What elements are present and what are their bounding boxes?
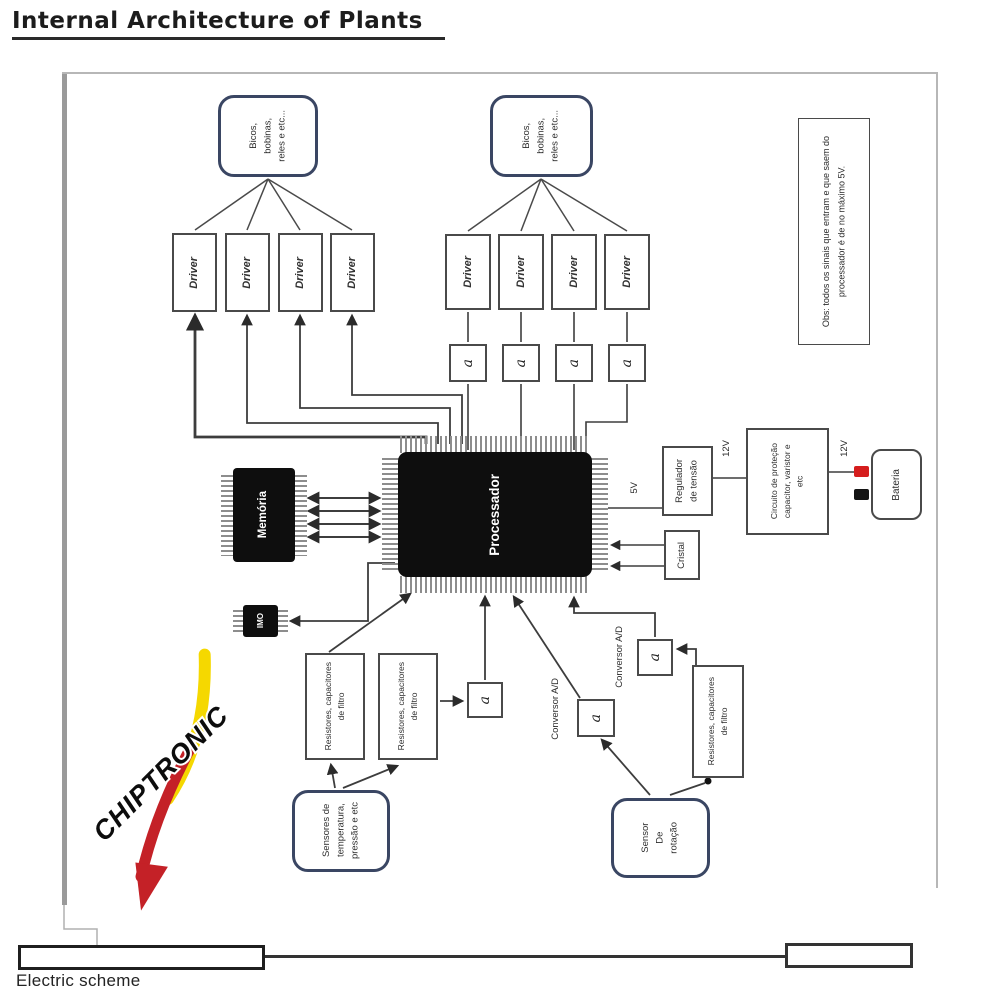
logo-red-swoosh: [101, 748, 230, 877]
ci-box: a: [555, 344, 593, 382]
electric-scheme-rect-right: [785, 943, 913, 968]
crystal-box: Cristal: [664, 530, 700, 580]
driver-box: Driver: [445, 234, 491, 310]
driver-box: Driver: [551, 234, 597, 310]
driver-label: Driver: [566, 256, 583, 288]
driver-box: Driver: [172, 233, 217, 312]
ci-box: a: [502, 344, 540, 382]
battery-terminals: [854, 466, 869, 500]
driver-label: Driver: [619, 256, 636, 288]
processor-label: Processador: [485, 474, 505, 556]
ci-label: a: [645, 653, 666, 661]
filter-label: Resistores, capacitores de filtro: [395, 662, 421, 750]
ci-box: a: [467, 682, 503, 718]
electric-scheme-rect-left: [18, 945, 265, 970]
ci-box: a: [577, 699, 615, 737]
memory-pins-right: [294, 475, 307, 556]
filter-label: Resistores, capacitores de filtro: [705, 677, 731, 765]
battery-label: Bateria: [889, 469, 904, 501]
ci-box: a: [608, 344, 646, 382]
imo-chip: IMO: [243, 605, 278, 637]
processor-pins-left: [382, 458, 399, 572]
protection-circuit-label: Circuito de proteção capacitor, varistor…: [768, 443, 806, 519]
driver-box: Driver: [278, 233, 323, 312]
5v-label: 5V: [626, 472, 644, 504]
diagram-frame-left: [62, 72, 67, 905]
ci-box: a: [637, 639, 673, 676]
driver-label: Driver: [239, 257, 256, 289]
driver-box: Driver: [225, 233, 270, 312]
electric-scheme-label: Electric scheme: [16, 971, 140, 991]
crystal-label: Cristal: [675, 542, 689, 569]
ci-label: a: [475, 696, 496, 704]
actuators-label: Bicos, bobinas, reles e etc...: [247, 110, 290, 162]
driver-label: Driver: [292, 257, 309, 289]
adc-label: Conversor A/D: [610, 620, 630, 694]
driver-box: Driver: [604, 234, 650, 310]
logo-text: CHIPTRONIC: [87, 700, 234, 847]
battery-negative-terminal: [854, 489, 869, 500]
electric-scheme-line: [265, 955, 785, 958]
imo-label: IMO: [255, 613, 267, 628]
12v-label: 12V: [718, 432, 736, 464]
actuators-box-left: Bicos, bobinas, reles e etc...: [218, 95, 318, 177]
voltage-regulator-box: Regulador de tensão: [662, 446, 713, 516]
driver-box: Driver: [498, 234, 544, 310]
page-title: Internal Architecture of Plants: [12, 8, 445, 40]
rotation-sensor-box: Sensor De rotação: [611, 798, 710, 878]
filter-box: Resistores, capacitores de filtro: [305, 653, 365, 760]
diagram-frame-top: [62, 72, 938, 74]
processor-pins-right: [591, 458, 608, 572]
memory-label: Memória: [255, 491, 272, 538]
ci-label: a: [511, 359, 532, 367]
chiptronic-logo: CHIPTRONIC: [45, 655, 301, 911]
voltage-regulator-label: Regulador de tensão: [673, 459, 702, 503]
driver-label: Driver: [186, 257, 203, 289]
rotation-sensor-label: Sensor De rotação: [639, 822, 682, 854]
signal-lines: [64, 312, 854, 945]
12v-label: 12V: [836, 432, 854, 464]
driver-box: Driver: [330, 233, 375, 312]
processor-chip: Processador: [398, 452, 592, 577]
driver-label: Driver: [460, 256, 477, 288]
memory-chip: Memória: [233, 468, 295, 562]
temperature-sensors-box: Sensores de temperatura, pressão e etc: [292, 790, 390, 872]
note-text: Obs: todos os sinais que entram e que sa…: [819, 136, 850, 327]
driver-label: Driver: [344, 257, 361, 289]
processor-pins-top: [400, 436, 590, 453]
temperature-sensors-label: Sensores de temperatura, pressão e etc: [320, 802, 363, 859]
filter-box: Resistores, capacitores de filtro: [692, 665, 744, 778]
fan-lines: [195, 179, 627, 231]
diagram-frame-right: [936, 72, 938, 888]
actuators-box-right: Bicos, bobinas, reles e etc...: [490, 95, 593, 177]
ci-label: a: [564, 359, 585, 367]
battery-positive-terminal: [854, 466, 869, 477]
logo-red-arrowhead: [114, 848, 176, 910]
adc-label: Conversor A/D: [546, 670, 566, 748]
note-box: Obs: todos os sinais que entram e que sa…: [798, 118, 870, 345]
ci-label: a: [458, 359, 479, 367]
ci-box: a: [449, 344, 487, 382]
logo-yellow-swoosh: [114, 655, 258, 799]
ci-label: a: [617, 359, 638, 367]
actuators-label: Bicos, bobinas, reles e etc...: [520, 110, 563, 162]
battery-box: Bateria: [871, 449, 922, 520]
imo-pins-right: [277, 610, 288, 634]
filter-label: Resistores, capacitores de filtro: [322, 662, 348, 750]
ci-label: a: [586, 714, 607, 722]
driver-label: Driver: [513, 256, 530, 288]
filter-box: Resistores, capacitores de filtro: [378, 653, 438, 760]
processor-pins-bottom: [400, 576, 590, 593]
protection-circuit-box: Circuito de proteção capacitor, varistor…: [746, 428, 829, 535]
